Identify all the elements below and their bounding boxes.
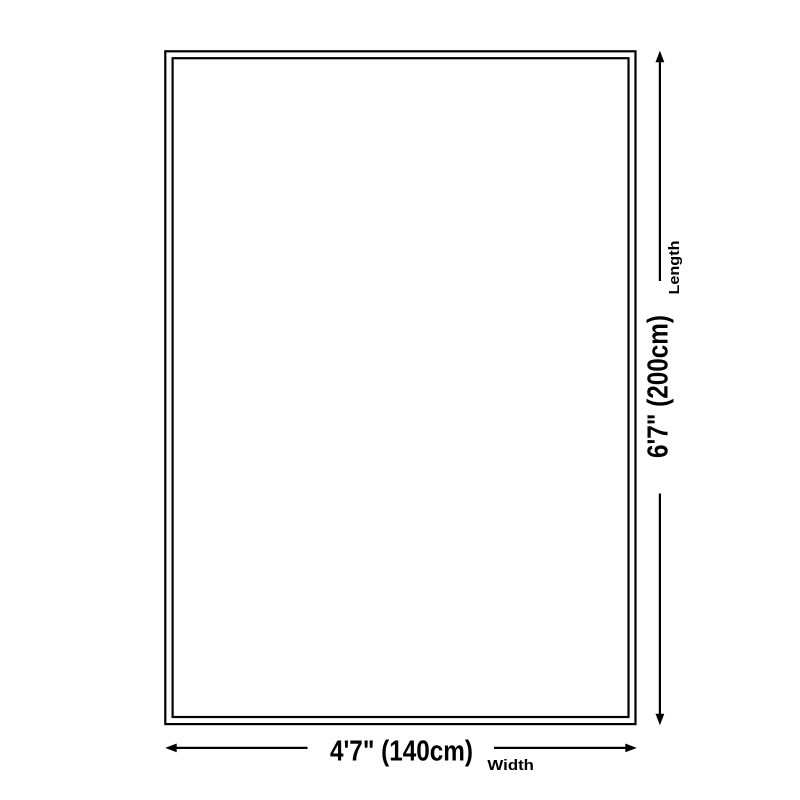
svg-text:4'7" (140cm): 4'7" (140cm) [330, 735, 473, 767]
svg-text:Length: Length [666, 241, 683, 295]
svg-text:Width: Width [487, 757, 534, 774]
svg-text:6'7" (200cm): 6'7" (200cm) [643, 315, 675, 458]
